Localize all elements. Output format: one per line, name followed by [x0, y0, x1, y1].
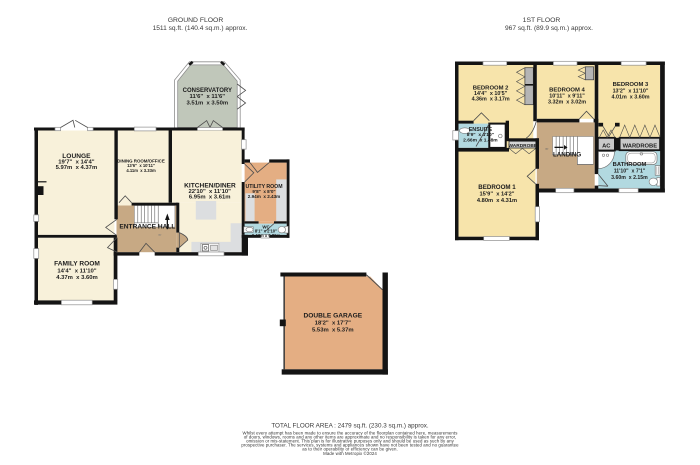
svg-text:GROUND FLOOR: GROUND FLOOR: [168, 17, 224, 24]
svg-text:WARDROBE: WARDROBE: [623, 144, 658, 150]
svg-text:3.32m x 3.02m: 3.32m x 3.02m: [548, 100, 586, 106]
svg-text:1ST FLOOR: 1ST FLOOR: [523, 17, 561, 24]
svg-text:LANDING: LANDING: [553, 152, 581, 159]
svg-text:11'10" x 7'1": 11'10" x 7'1": [614, 168, 646, 174]
svg-text:11'6" x 11'6": 11'6" x 11'6": [190, 94, 226, 100]
svg-text:FAMILY ROOM: FAMILY ROOM: [54, 261, 100, 268]
svg-text:BEDROOM 4: BEDROOM 4: [549, 88, 585, 94]
svg-text:6.95m x 3.61m: 6.95m x 3.61m: [189, 194, 231, 200]
svg-text:BEDROOM 3: BEDROOM 3: [613, 82, 649, 88]
svg-text:ENTRANCE HALL: ENTRANCE HALL: [119, 224, 175, 231]
svg-text:15'9" x 14'2": 15'9" x 14'2": [480, 191, 515, 197]
svg-text:1511 sq.ft. (140.4 sq.m.) appr: 1511 sq.ft. (140.4 sq.m.) approx.: [153, 25, 248, 32]
svg-text:4.80m x 4.31m: 4.80m x 4.31m: [477, 198, 517, 204]
svg-text:BATHROOM: BATHROOM: [613, 162, 647, 168]
svg-text:DOUBLE GARAGE: DOUBLE GARAGE: [303, 312, 362, 319]
svg-text:4.37m x 3.60m: 4.37m x 3.60m: [56, 275, 98, 281]
svg-text:13'2" x 11'10": 13'2" x 11'10": [613, 88, 649, 94]
svg-text:967 sq.ft. (89.9 sq.m.) approx: 967 sq.ft. (89.9 sq.m.) approx.: [505, 25, 593, 32]
svg-text:up: up: [545, 146, 549, 150]
svg-text:14'4" x 11'10": 14'4" x 11'10": [57, 268, 96, 274]
svg-text:WARDROBE: WARDROBE: [509, 143, 538, 149]
svg-text:2.66m x 1.48m: 2.66m x 1.48m: [463, 138, 498, 144]
svg-text:8'9" x 4'10": 8'9" x 4'10": [467, 132, 494, 138]
svg-text:5.97m x 4.37m: 5.97m x 4.37m: [56, 165, 98, 171]
svg-text:4.36m x 3.17m: 4.36m x 3.17m: [472, 97, 510, 103]
svg-text:ENSUITE: ENSUITE: [469, 127, 493, 133]
svg-text:up: up: [158, 233, 162, 237]
svg-text:3.60m x 2.15m: 3.60m x 2.15m: [611, 175, 648, 181]
svg-text:BEDROOM 1: BEDROOM 1: [478, 184, 516, 191]
svg-text:4.01m x 3.60m: 4.01m x 3.60m: [611, 95, 649, 101]
svg-text:4.11m x 3.33m: 4.11m x 3.33m: [126, 168, 156, 173]
svg-text:18'2" x 17'7": 18'2" x 17'7": [315, 320, 351, 326]
svg-text:3.51m x 3.50m: 3.51m x 3.50m: [187, 100, 229, 106]
svg-text:TOTAL FLOOR AREA : 2479 sq.ft.: TOTAL FLOOR AREA : 2479 sq.ft. (230.3 sq…: [271, 423, 429, 430]
svg-text:2.47m x 0.86m: 2.47m x 0.86m: [252, 233, 281, 238]
svg-text:2.94m x 2.43m: 2.94m x 2.43m: [248, 194, 280, 199]
svg-text:Made with Metropix ©2024: Made with Metropix ©2024: [323, 451, 377, 456]
svg-text:CONSERVATORY: CONSERVATORY: [183, 88, 232, 94]
svg-text:AC: AC: [602, 144, 611, 150]
svg-text:5.53m x 5.37m: 5.53m x 5.37m: [312, 328, 354, 334]
